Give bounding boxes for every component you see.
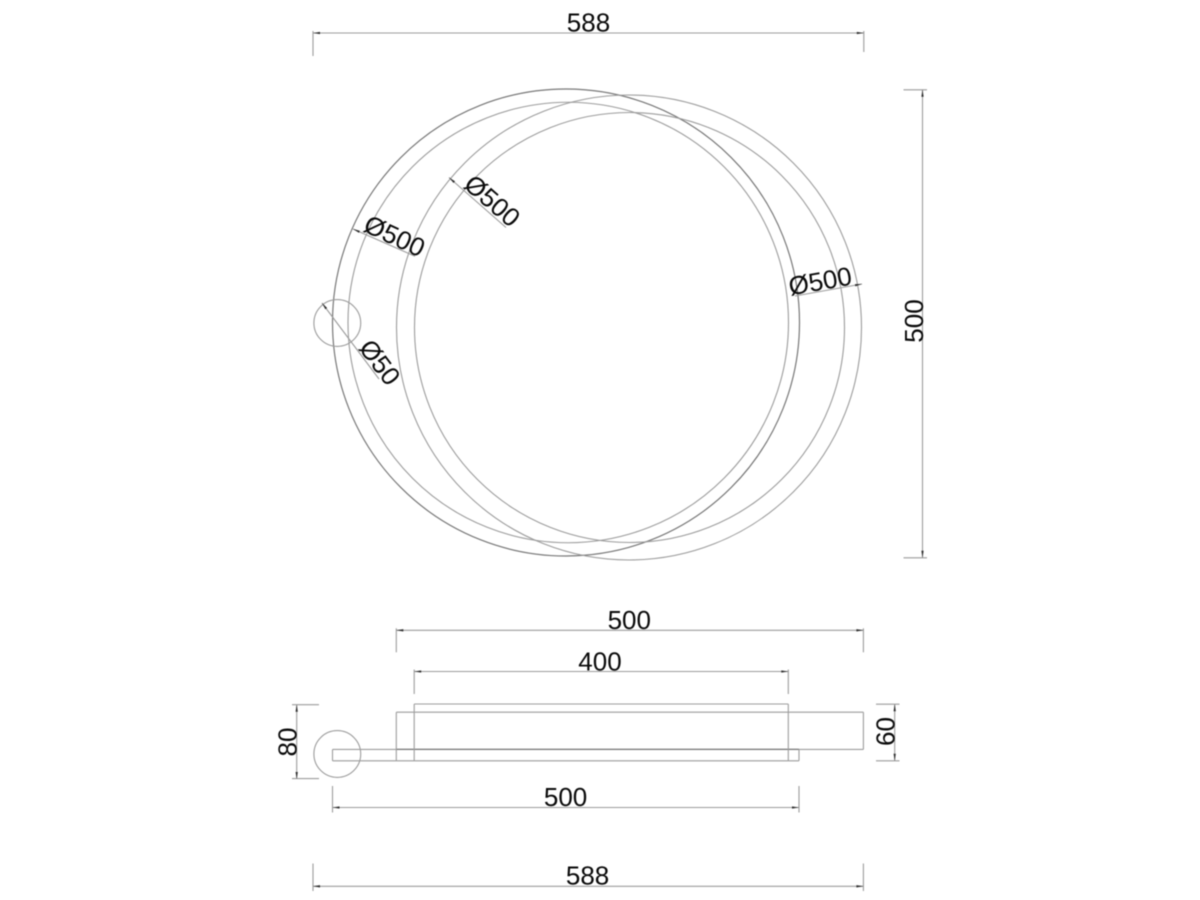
svg-text:400: 400 [578, 646, 621, 676]
svg-text:60: 60 [870, 717, 900, 746]
svg-text:500: 500 [608, 605, 651, 635]
svg-text:588: 588 [567, 8, 610, 38]
svg-text:500: 500 [899, 299, 929, 342]
svg-text:500: 500 [544, 782, 587, 812]
svg-text:588: 588 [566, 861, 609, 891]
svg-text:80: 80 [272, 728, 302, 757]
